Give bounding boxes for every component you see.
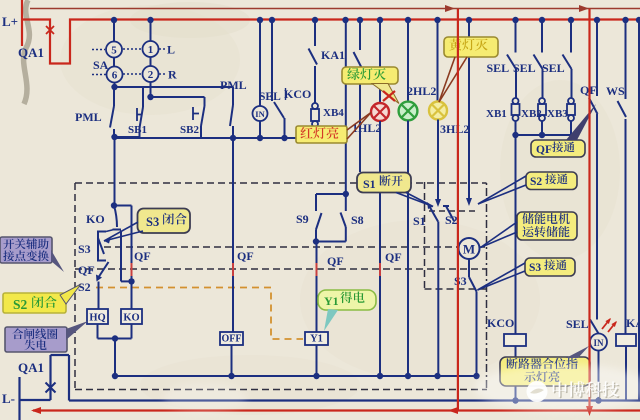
svg-text:QF: QF	[536, 144, 552, 156]
svg-text:QF: QF	[580, 83, 597, 97]
svg-text:QF: QF	[78, 263, 95, 277]
svg-text:S3: S3	[78, 242, 91, 256]
svg-text:SEL: SEL	[513, 61, 536, 75]
svg-text:IN: IN	[593, 338, 604, 348]
svg-text:3HL2: 3HL2	[440, 122, 469, 136]
svg-text:QF: QF	[134, 249, 151, 263]
svg-text:QA1: QA1	[18, 360, 44, 375]
svg-text:Y1: Y1	[310, 334, 323, 345]
svg-text:5: 5	[111, 45, 117, 57]
svg-text:R: R	[168, 68, 177, 82]
svg-text:SEL: SEL	[487, 61, 510, 75]
svg-text:S1: S1	[363, 177, 376, 191]
svg-text:2HL2: 2HL2	[407, 84, 436, 98]
svg-text:S3: S3	[454, 274, 467, 288]
svg-text:XB1: XB1	[486, 108, 507, 120]
svg-text:IN: IN	[255, 109, 265, 119]
svg-text:L: L	[167, 43, 175, 57]
svg-text:SEL: SEL	[566, 317, 589, 331]
svg-text:SA: SA	[93, 58, 109, 72]
svg-text:KO: KO	[86, 212, 105, 226]
svg-text:SB2: SB2	[180, 124, 199, 136]
svg-text:S2: S2	[530, 176, 542, 188]
svg-text:S1: S1	[413, 214, 426, 228]
svg-text:S2: S2	[445, 213, 458, 227]
svg-text:L+: L+	[2, 14, 18, 29]
svg-text:SB1: SB1	[128, 124, 147, 136]
svg-text:M: M	[463, 242, 475, 257]
svg-text:PML: PML	[75, 110, 102, 124]
svg-text:KO: KO	[123, 313, 139, 324]
svg-text:QA1: QA1	[18, 45, 44, 60]
svg-text:S3: S3	[529, 262, 541, 274]
svg-text:QF: QF	[237, 249, 254, 263]
svg-text:QF: QF	[385, 250, 402, 264]
svg-text:XB4: XB4	[323, 107, 344, 119]
svg-text:QF: QF	[327, 254, 344, 268]
svg-text:Y1: Y1	[324, 294, 339, 308]
svg-text:KA1: KA1	[321, 48, 345, 62]
svg-text:S9: S9	[296, 212, 309, 226]
svg-text:S3: S3	[146, 215, 159, 229]
svg-text:KCO: KCO	[487, 316, 514, 330]
svg-text:S8: S8	[351, 213, 364, 227]
svg-text:2: 2	[148, 69, 154, 81]
svg-text:XB2: XB2	[521, 108, 542, 120]
svg-text:1: 1	[148, 44, 154, 56]
svg-text:KA: KA	[626, 316, 640, 330]
svg-text:S2: S2	[13, 297, 28, 312]
svg-text:WS: WS	[606, 84, 625, 98]
svg-text:S2: S2	[78, 280, 91, 294]
svg-text:6: 6	[112, 70, 118, 82]
svg-text:KCO: KCO	[284, 87, 311, 101]
svg-text:OFF: OFF	[222, 334, 242, 345]
svg-text:L-: L-	[2, 391, 15, 406]
svg-text:HQ: HQ	[89, 313, 105, 324]
svg-text:SEL: SEL	[542, 61, 565, 75]
svg-text:SEL: SEL	[259, 91, 281, 103]
svg-text:XB3: XB3	[547, 108, 568, 120]
